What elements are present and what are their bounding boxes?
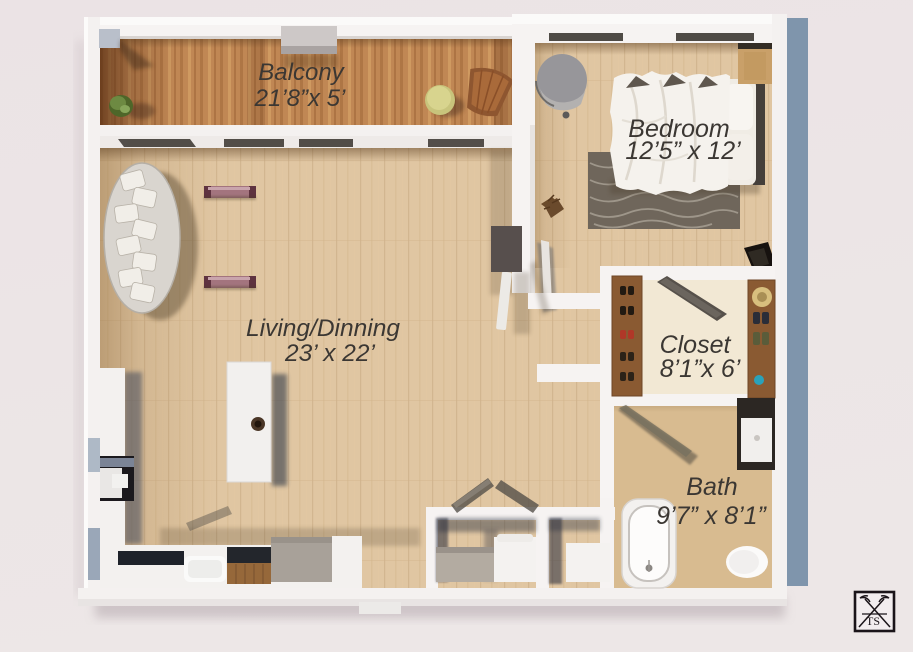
svg-text:21’8”x 5’: 21’8”x 5’: [254, 85, 346, 112]
svg-text:Living/Dinning: Living/Dinning: [246, 315, 400, 342]
svg-text:TS: TS: [866, 614, 880, 628]
svg-text:Balcony: Balcony: [258, 59, 345, 86]
svg-text:Bath: Bath: [686, 473, 737, 501]
svg-text:9’7” x 8’1”: 9’7” x 8’1”: [656, 502, 767, 530]
svg-text:12’5” x 12’: 12’5” x 12’: [625, 137, 741, 165]
svg-text:8’1”x 6’: 8’1”x 6’: [660, 355, 741, 383]
svg-text:23’ x 22’: 23’ x 22’: [284, 340, 375, 367]
